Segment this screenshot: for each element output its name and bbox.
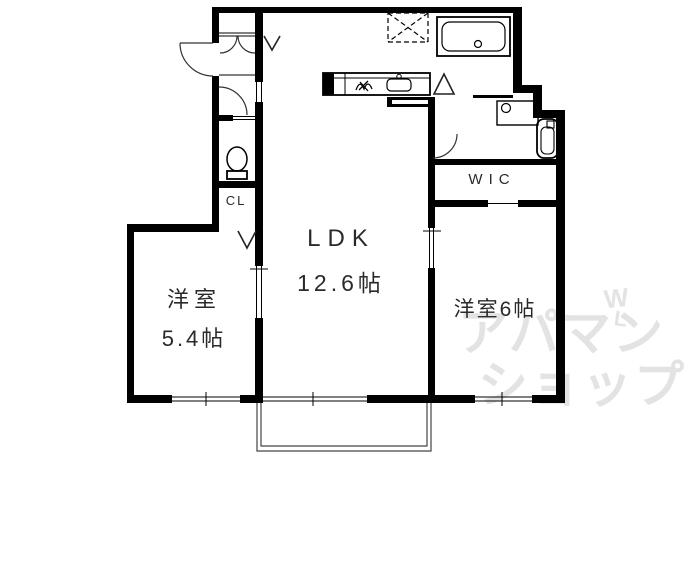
wic-label: WIC bbox=[440, 171, 544, 188]
floorplan-canvas: アパマン W L ショップ bbox=[0, 0, 690, 575]
bedroom-left-label: 洋室 bbox=[134, 282, 254, 314]
bedroom-right-label: 洋室6帖 bbox=[435, 293, 555, 323]
cl-label: CL bbox=[217, 193, 255, 208]
bedroom-left-size-label: 5.4帖 bbox=[134, 321, 254, 353]
ldk-size-label: 12.6帖 bbox=[276, 264, 406, 298]
labels-layer: LDK 12.6帖 洋室 5.4帖 洋室6帖 WIC CL bbox=[0, 0, 690, 575]
ldk-label: LDK bbox=[276, 225, 406, 253]
